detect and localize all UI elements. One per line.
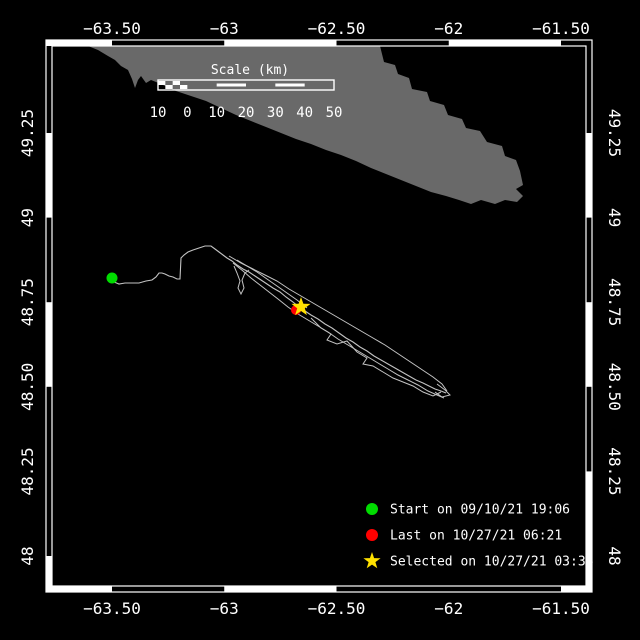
scale-bar-checker-cell bbox=[158, 81, 165, 85]
scale-bar-label: 30 bbox=[267, 105, 284, 121]
lon-label-bottom: −63 bbox=[210, 599, 239, 618]
scale-bar-stripe bbox=[217, 84, 246, 87]
frame-band-right bbox=[586, 471, 592, 556]
frame-band-right bbox=[586, 133, 592, 218]
scale-bar-label: 0 bbox=[183, 105, 191, 121]
legend-label: Selected on 10/27/21 03:36 bbox=[390, 555, 594, 570]
legend-marker-start bbox=[366, 503, 378, 515]
legend-label: Last on 10/27/21 06:21 bbox=[390, 529, 562, 544]
tracking-map-svg: Scale (km)1001020304050−63.50−63.50−63−6… bbox=[0, 0, 640, 640]
lat-label-right: 48.75 bbox=[605, 278, 624, 326]
lon-label-top: −62 bbox=[434, 19, 463, 38]
lon-label-bottom: −62 bbox=[434, 599, 463, 618]
frame-band-top bbox=[224, 40, 336, 46]
lat-label-left: 48.50 bbox=[18, 363, 37, 411]
lon-label-top: −63 bbox=[210, 19, 239, 38]
lat-label-left: 49 bbox=[18, 208, 37, 227]
track-strand bbox=[237, 260, 307, 308]
scale-bar-label: 40 bbox=[296, 105, 313, 121]
lat-label-left: 48 bbox=[18, 546, 37, 565]
track-strand bbox=[229, 256, 447, 391]
scale-bar-checker-cell bbox=[165, 85, 172, 89]
scale-bar-label: 50 bbox=[326, 105, 343, 121]
legend-marker-last bbox=[366, 529, 378, 541]
scale-bar-label: 10 bbox=[150, 105, 167, 121]
scale-bar-title: Scale (km) bbox=[211, 63, 289, 78]
frame-band-left bbox=[46, 133, 52, 218]
lon-label-bottom: −63.50 bbox=[83, 599, 141, 618]
frame-band-bottom bbox=[46, 586, 112, 592]
lon-label-bottom: −62.50 bbox=[308, 599, 366, 618]
frame-band-left bbox=[46, 556, 52, 592]
tracking-map-canvas: Scale (km)1001020304050−63.50−63.50−63−6… bbox=[0, 0, 640, 640]
lon-label-top: −63.50 bbox=[83, 19, 141, 38]
frame-band-right bbox=[586, 302, 592, 387]
lon-label-bottom: −61.50 bbox=[532, 599, 590, 618]
lat-label-right: 49 bbox=[605, 208, 624, 227]
lat-label-right: 49.25 bbox=[605, 109, 624, 157]
scale-bar-checker-cell bbox=[180, 85, 187, 89]
track-line bbox=[112, 246, 446, 393]
scale-bar-stripe bbox=[275, 84, 304, 87]
lat-label-right: 48 bbox=[605, 546, 624, 565]
lat-label-left: 48.25 bbox=[18, 447, 37, 495]
lat-label-left: 48.75 bbox=[18, 278, 37, 326]
scale-bar-checker-cell bbox=[173, 81, 180, 85]
frame-band-bottom bbox=[224, 586, 336, 592]
frame-band-top bbox=[449, 40, 561, 46]
lat-label-right: 48.50 bbox=[605, 363, 624, 411]
scale-bar-label: 20 bbox=[238, 105, 255, 121]
lat-label-right: 48.25 bbox=[605, 447, 624, 495]
frame-band-left bbox=[46, 302, 52, 387]
frame-band-top bbox=[46, 40, 112, 46]
island-landmass bbox=[88, 46, 523, 204]
scale-bar-label: 10 bbox=[208, 105, 225, 121]
start-position-marker bbox=[107, 273, 118, 284]
lon-label-top: −61.50 bbox=[532, 19, 590, 38]
lon-label-top: −62.50 bbox=[308, 19, 366, 38]
legend-marker-selected bbox=[363, 552, 380, 568]
legend-label: Start on 09/10/21 19:06 bbox=[390, 503, 570, 518]
lat-label-left: 49.25 bbox=[18, 109, 37, 157]
